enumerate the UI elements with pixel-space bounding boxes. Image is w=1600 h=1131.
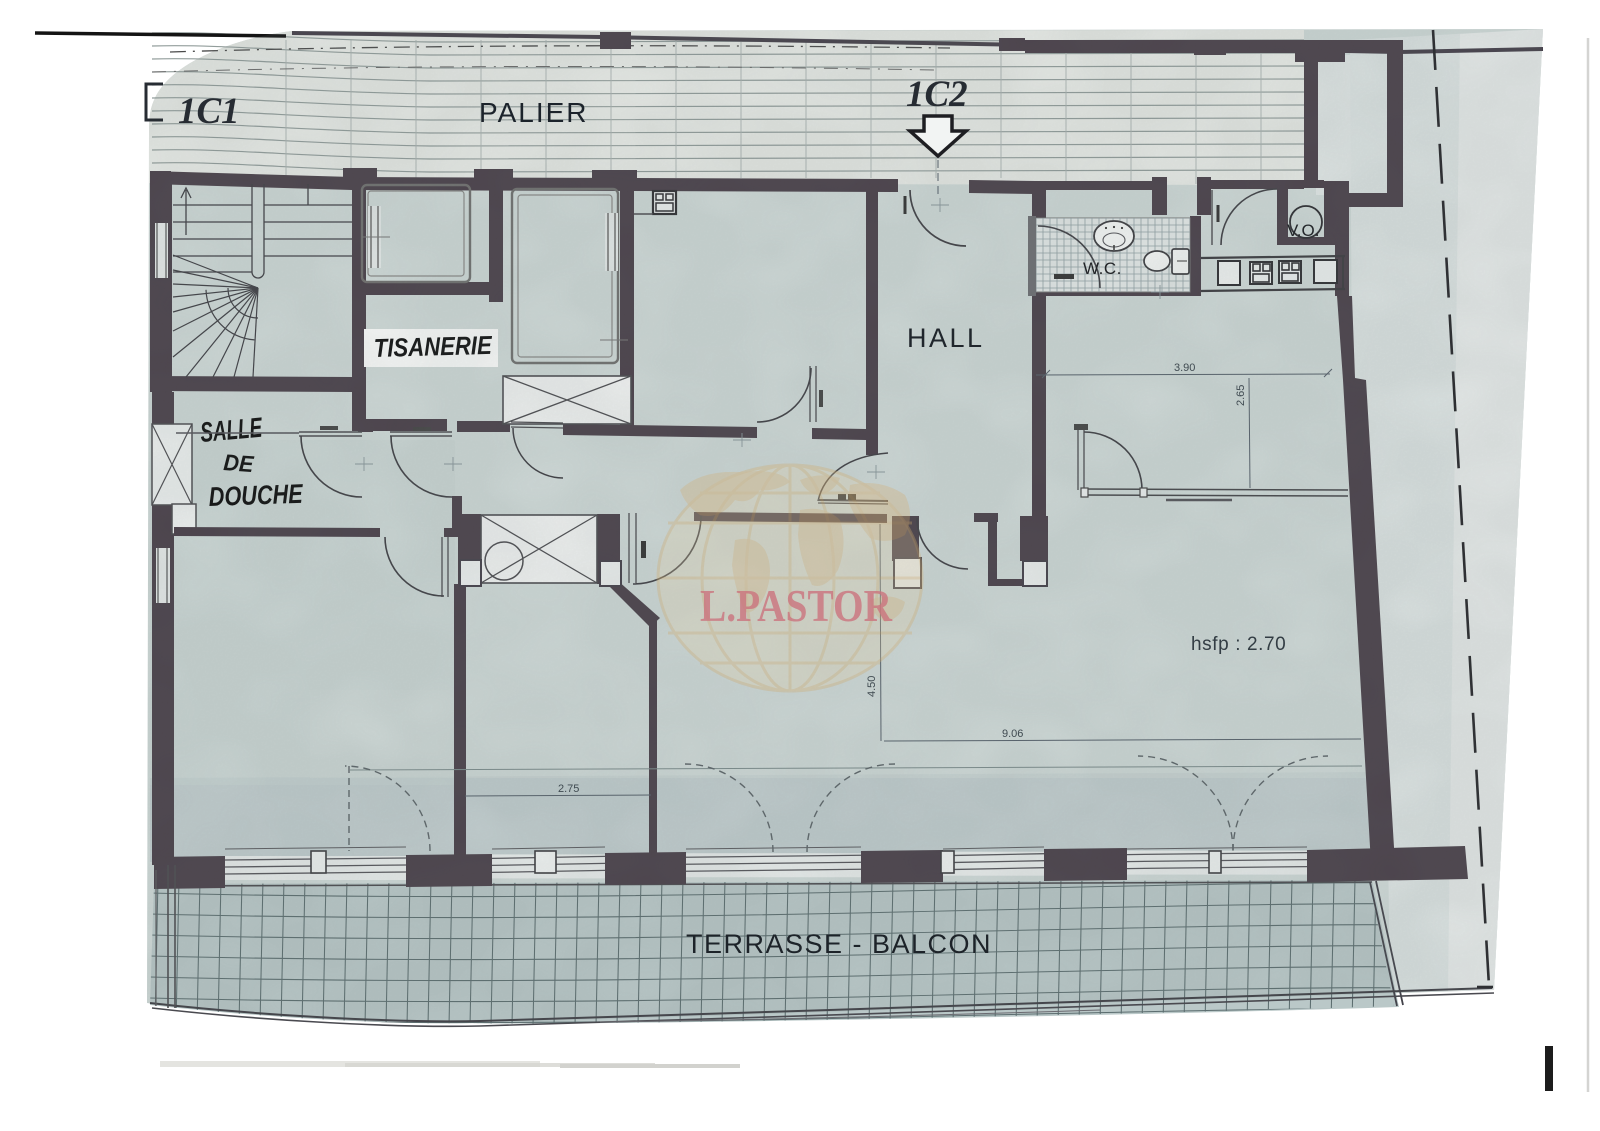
svg-text:1C1: 1C1	[178, 91, 240, 132]
svg-text:HALL: HALL	[907, 323, 985, 353]
svg-text:PALIER: PALIER	[479, 97, 589, 128]
svg-text:L.PASTOR: L.PASTOR	[700, 581, 892, 631]
svg-text:hsfp : 2.70: hsfp : 2.70	[1191, 634, 1286, 655]
svg-text:1C2: 1C2	[906, 74, 968, 115]
svg-text:TERRASSE - BALCON: TERRASSE - BALCON	[686, 929, 992, 959]
